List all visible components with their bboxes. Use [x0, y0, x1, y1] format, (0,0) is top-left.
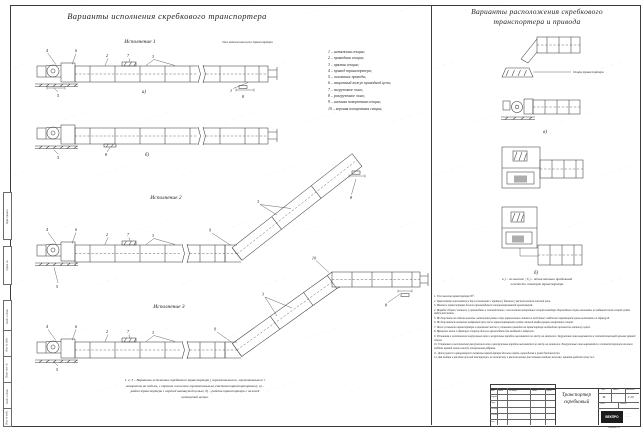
tb-role-razrab: Разраб.	[491, 396, 498, 398]
drive-unit	[35, 63, 78, 87]
callout-6: 6	[72, 48, 78, 65]
left-title: Варианты исполнения скребкового транспор…	[27, 11, 307, 22]
callout-2: 2	[105, 232, 108, 245]
document-title: Транспортер скребковый	[556, 392, 597, 406]
svg-text:9: 9	[214, 327, 217, 332]
callout-7: 7	[127, 53, 130, 62]
note-item: 8. Вращение валов в обратную сторону дол…	[434, 330, 636, 334]
svg-text:10: 10	[312, 256, 317, 261]
svg-text:8: 8	[242, 94, 245, 99]
callout-10: 10	[312, 256, 329, 273]
tb-role-nkontr: Н.контр.	[491, 414, 499, 416]
tension-unit-note: Узел натяжения цепи транспортера	[222, 40, 317, 44]
svg-text:8: 8	[350, 195, 353, 200]
tb-role-prov: Пров.	[491, 402, 496, 404]
svg-text:3: 3	[257, 199, 259, 204]
legend-list: 1 – натяжная секция; 2 – приводная секци…	[328, 49, 433, 112]
svg-text:5: 5	[57, 93, 59, 98]
callout-3: 3	[146, 330, 175, 342]
left-caption: 1, 2, 3 – Варианты исполнения скребковог…	[45, 378, 345, 400]
fig-b-front-view-1	[502, 147, 583, 188]
tb-header-docnum: № докум.	[509, 390, 517, 392]
drawing-ispolnenie-1a: 4 6 2 7 3 1 8 5 а)	[34, 44, 294, 102]
callout-9: 9	[214, 327, 232, 343]
note-item: 1. Угол наклона транспортера 30°.	[434, 295, 636, 299]
callout-3: 3	[146, 233, 175, 245]
dimension-upper	[398, 290, 412, 297]
svg-text:4: 4	[46, 48, 48, 53]
note-item: 4. Порядок сборки ( монтаж ) производить…	[434, 309, 636, 317]
svg-text:6: 6	[75, 324, 78, 329]
svg-text:4: 4	[46, 227, 48, 232]
callout-8: 8	[242, 94, 245, 99]
callout-6: 6	[72, 324, 78, 341]
tb-header-podp: Подп.	[532, 390, 537, 392]
callout-5: 5	[54, 362, 58, 372]
callout-8: 8	[350, 179, 356, 200]
upper-conveyor-body	[327, 272, 428, 289]
note-item: 5. Не допускать на изделии вылеты, натяж…	[434, 317, 636, 321]
callout-9: 9	[209, 228, 231, 246]
note-item: 7. После установки транспортера в проект…	[434, 326, 636, 330]
frame-label-podp-data-2: Подп. и дата	[3, 382, 12, 410]
callout-7: 7	[127, 329, 130, 338]
svg-text:1: 1	[230, 88, 232, 93]
company-logo: ВЕКПРО	[601, 411, 623, 423]
tb-lit-value: М	[603, 395, 606, 399]
note-item: 10. Установка и изготовление разгрузочны…	[434, 343, 636, 351]
logo-side-lines: — — —— — —	[626, 413, 632, 419]
svg-text:7: 7	[127, 232, 130, 237]
svg-text:2: 2	[106, 232, 108, 237]
frame-label-inv-dubl: Инв. № дубл.	[3, 330, 12, 358]
drive-unit	[35, 339, 78, 363]
svg-text:7: 7	[127, 329, 130, 334]
frame-label-vzam-inv: Взам. инв. №	[3, 356, 12, 384]
drive-unit	[35, 125, 78, 149]
tb-role-tkontr: Т.контр.	[491, 408, 499, 410]
callout-3-incline: 3	[257, 199, 291, 215]
callout-4: 4	[46, 324, 56, 341]
svg-text:3: 3	[262, 292, 264, 297]
callout-3: 3	[146, 54, 175, 66]
note-item: 2. Транспортер выполняется в двух исполн…	[434, 300, 636, 304]
fig-support-side-view: Опора транспортера	[502, 37, 604, 77]
tb-col-mass: Масса	[613, 389, 618, 391]
note-item: 9. Установка и изготовление загрузочных …	[434, 335, 636, 343]
fig-a-label: а)	[543, 130, 547, 135]
conveyor-body	[75, 338, 239, 359]
right-title: Варианты расположения скребкового трансп…	[437, 7, 637, 27]
svg-text:8: 8	[385, 303, 388, 308]
drawing-sheet: ~·~·~·~~·~·~·~~·~·~·~~·~·~·~~·~·~·~~·~·~…	[0, 0, 644, 430]
frame-label-sprav-no: Справ. №	[3, 246, 12, 285]
conveyor-body	[75, 127, 277, 147]
fig-b-label: б)	[534, 271, 538, 276]
svg-text:3: 3	[152, 330, 154, 335]
svg-text:3: 3	[152, 233, 154, 238]
callout-2: 2	[105, 53, 108, 66]
svg-text:3: 3	[152, 54, 154, 59]
sub-label-a: а)	[142, 90, 146, 95]
svg-text:2: 2	[106, 329, 108, 334]
tb-role-utv: Утв.	[491, 421, 495, 423]
support-label: Опора транспортера	[573, 70, 604, 74]
right-panel-figures: Опора транспортера а)	[435, 30, 640, 276]
callout-6: 6	[72, 227, 78, 244]
svg-text:6: 6	[75, 227, 78, 232]
svg-text:2: 2	[106, 53, 108, 58]
callout-4: 4	[46, 227, 56, 244]
dimension-left	[47, 87, 65, 90]
tb-sheet-label: Лист	[600, 403, 605, 405]
note-item: 6. Не допускается изменение выбранной це…	[434, 321, 636, 325]
fig-a-side-view: а)	[501, 99, 580, 135]
legend-item: 10 – верхняя поворотная секция;	[328, 106, 433, 112]
callout-4: 4	[46, 48, 56, 65]
tb-sheets-label: Листов	[620, 403, 627, 405]
title-block: Изм. Лист № докум. Подп. Дата Разраб. Пр…	[490, 384, 640, 430]
tb-header-list: Лист	[498, 390, 503, 392]
callout-2: 2	[105, 329, 108, 342]
right-caption: а ) – по высоте ; б ) – относительно про…	[437, 277, 637, 288]
tb-col-scale: Масштаб	[626, 389, 635, 391]
incline-section	[232, 276, 336, 357]
svg-text:9: 9	[209, 228, 212, 233]
svg-text:7: 7	[127, 53, 130, 58]
note-item: 11. Движущиеся и вращающиеся элементы тр…	[434, 352, 636, 356]
callout-5: 5	[54, 88, 59, 98]
callout-7: 7	[127, 232, 130, 241]
frame-label-inv-podl: Инв. № подл.	[3, 408, 12, 427]
note-item: 12. Для выбора и расчёта нужной конструк…	[434, 356, 636, 360]
frame-label-perv-primen: Перв. примен.	[3, 192, 12, 240]
tb-header-izm: Изм.	[491, 390, 495, 392]
note-item: 3. Монтаж транспортера должен производит…	[434, 304, 636, 308]
svg-text:6: 6	[75, 48, 78, 53]
fig-b-front-view-2: б)	[502, 207, 582, 276]
tb-scale-value: 1:20	[628, 395, 634, 399]
drawing-ispolnenie-3: 4 6 2 7 3 9 3 10 8 5	[34, 252, 434, 384]
frame-label-podp-data-1: Подп. и дата	[3, 300, 12, 332]
technical-notes: 1. Угол наклона транспортера 30°. 2. Тра…	[434, 295, 636, 361]
svg-text:4: 4	[46, 324, 48, 329]
svg-text:5: 5	[56, 367, 58, 372]
callout-8: 8	[385, 294, 400, 308]
tb-header-data: Дата	[547, 390, 552, 392]
format-label: Формат А3	[608, 426, 620, 429]
incline-section	[232, 154, 362, 261]
tb-col-lit: Лит.	[601, 389, 605, 391]
